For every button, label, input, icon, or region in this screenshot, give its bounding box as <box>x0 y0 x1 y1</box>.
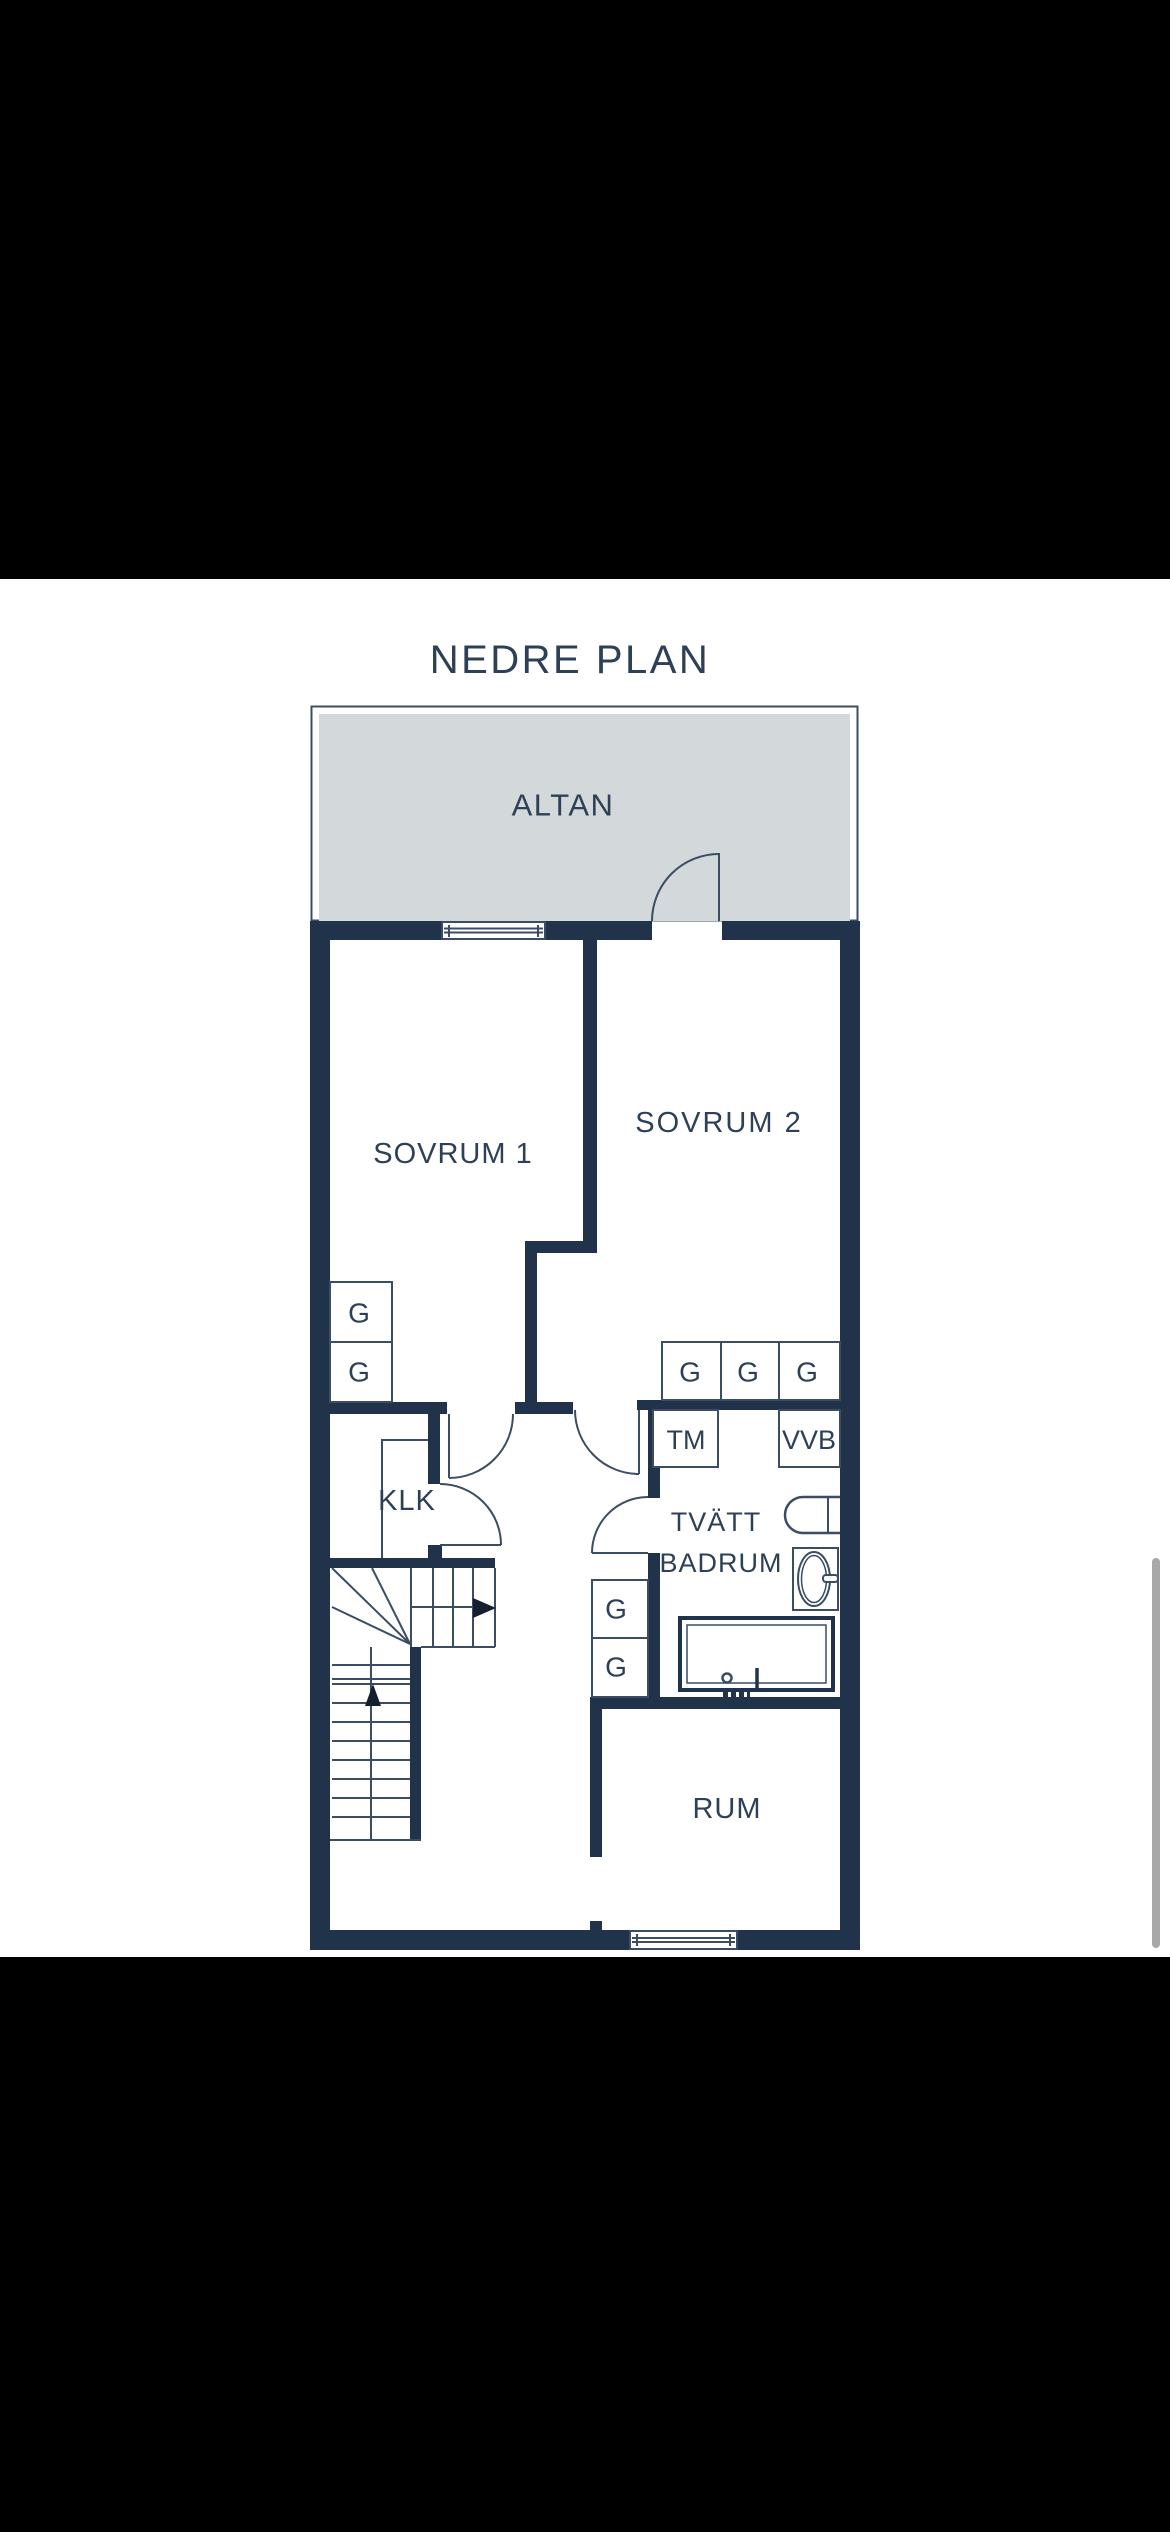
wall-sovrum1-bottom <box>310 1402 447 1414</box>
winder-line <box>332 1607 410 1644</box>
klk-door <box>440 1484 501 1545</box>
wall-exterior-left <box>310 921 330 1950</box>
wall-rum-left-stub <box>590 1921 602 1932</box>
bathtub-faucet <box>749 1668 757 1690</box>
wall-wardrobe-row-bottom <box>637 1400 860 1410</box>
room-label-sovrum2: SOVRUM 2 <box>635 1107 802 1139</box>
room-label-badrum: BADRUM <box>659 1548 782 1578</box>
walls <box>310 921 860 1950</box>
hall-door-right-arc <box>575 1410 639 1474</box>
wardrobe-label: G <box>796 1357 818 1388</box>
wall-klk-bottom <box>310 1558 495 1568</box>
washing-machine-label: TM <box>667 1425 706 1455</box>
wall-klk-right-upper <box>428 1414 440 1484</box>
sink <box>785 1497 840 1533</box>
bathroom-door-arc <box>592 1497 648 1553</box>
window-top <box>442 922 545 939</box>
wall-top-segment <box>722 921 860 940</box>
wall-stair-stringer <box>410 1647 421 1840</box>
klk-door-arc <box>440 1484 501 1545</box>
wardrobe-label: G <box>679 1357 701 1388</box>
wall-divider-end-cap <box>515 1402 573 1414</box>
wall-exterior-right <box>840 921 860 1950</box>
wardrobe-label: G <box>605 1652 627 1683</box>
bathtub-drain <box>723 1674 732 1683</box>
room-label-klk: KLK <box>378 1485 436 1517</box>
toilet <box>793 1548 838 1610</box>
room-label-tvatt: TVÄTT <box>671 1507 762 1537</box>
wall-bottom-segment <box>310 1930 630 1950</box>
hall-door-left <box>449 1414 513 1478</box>
page-title: NEDRE PLAN <box>430 638 711 682</box>
window-bottom <box>630 1931 737 1949</box>
room-label-sovrum1: SOVRUM 1 <box>373 1138 532 1170</box>
wall-rum-left <box>590 1697 602 1857</box>
room-label-altan: ALTAN <box>512 788 615 823</box>
wardrobe-label: G <box>348 1298 370 1329</box>
wardrobe-label: G <box>348 1357 370 1388</box>
water-heater-label: VVB <box>782 1425 836 1455</box>
stair-direction-arrow-right <box>473 1598 496 1618</box>
wall-bottom-segment <box>737 1930 860 1950</box>
bathtub <box>680 1618 833 1694</box>
toilet-flush-button <box>823 1575 838 1582</box>
phone-screen: NEDRE PLAN ALTAN <box>0 0 1170 2532</box>
terrace: ALTAN <box>312 707 858 922</box>
winder-line <box>332 1568 410 1644</box>
hall-door-right <box>575 1410 639 1474</box>
winder-line <box>372 1568 410 1644</box>
wall-bedroom-divider-lower <box>525 1253 537 1403</box>
wardrobe-label: G <box>605 1594 627 1625</box>
wall-top-segment <box>310 921 442 940</box>
wall-bedroom-divider-jog <box>525 1241 597 1253</box>
wall-bedroom-divider-upper <box>583 940 597 1253</box>
floorplan-drawing: NEDRE PLAN ALTAN <box>0 0 1170 2532</box>
wall-bathroom-left-lower <box>648 1553 660 1700</box>
wall-top-segment <box>545 921 652 940</box>
wall-rum-top <box>590 1697 860 1709</box>
wardrobe-label: G <box>737 1357 759 1388</box>
wall-klk-door-stub <box>428 1545 442 1558</box>
hall-door-left-arc <box>449 1414 513 1478</box>
bathroom-door <box>592 1497 648 1553</box>
stair-direction-arrow-up <box>365 1684 381 1706</box>
scrollbar-thumb[interactable] <box>1152 1558 1160 1948</box>
room-label-rum: RUM <box>692 1793 761 1825</box>
